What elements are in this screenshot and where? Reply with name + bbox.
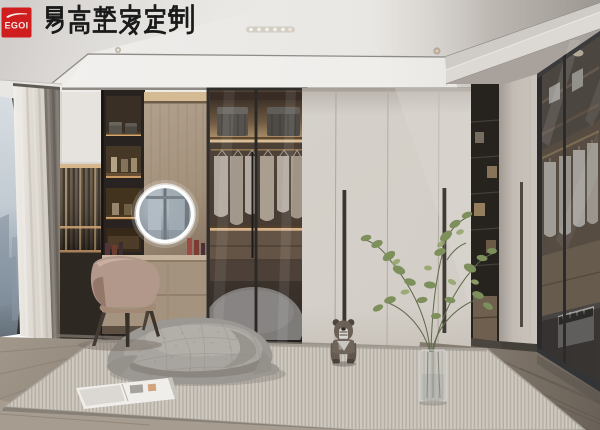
svg-text:EGOI: EGOI [4,21,28,31]
